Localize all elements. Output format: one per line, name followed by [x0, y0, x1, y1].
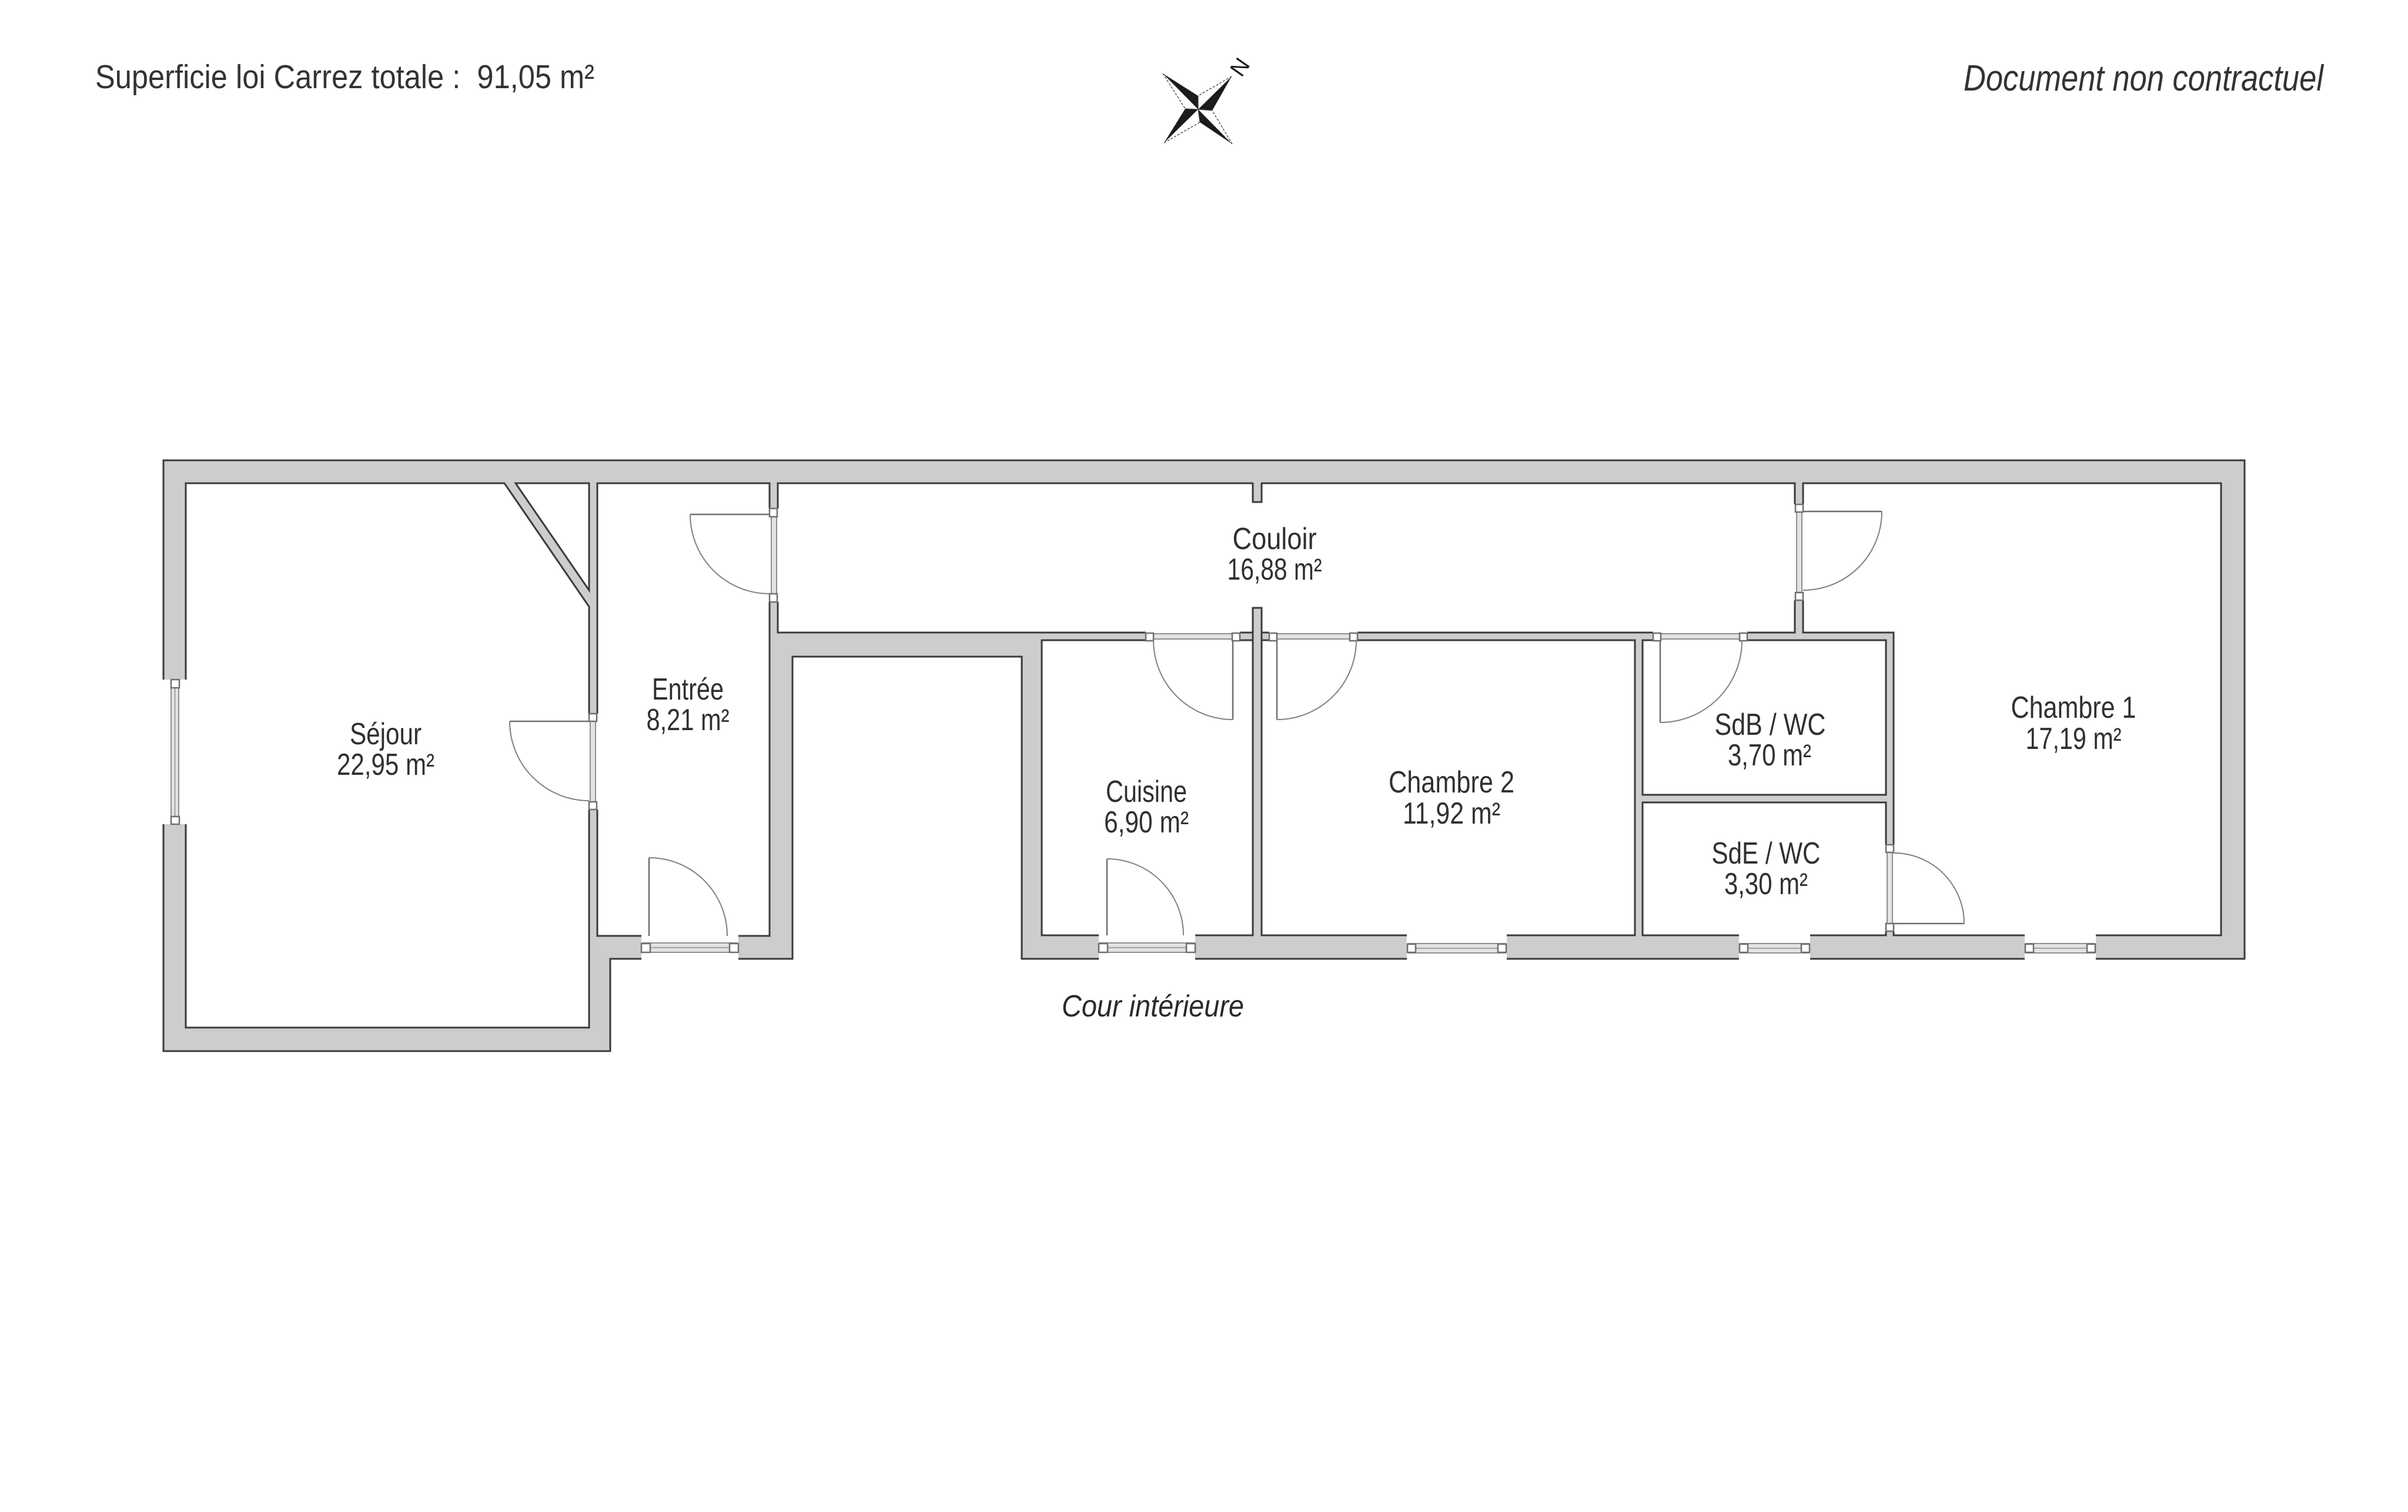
svg-text:Chambre 1: Chambre 1 — [2011, 691, 2136, 725]
svg-text:22,95 m²: 22,95 m² — [337, 748, 434, 782]
svg-text:Cour intérieure: Cour intérieure — [1062, 989, 1244, 1023]
svg-text:Couloir: Couloir — [1233, 522, 1317, 556]
svg-text:11,92 m²: 11,92 m² — [1403, 797, 1500, 831]
svg-text:Cuisine: Cuisine — [1106, 775, 1187, 809]
svg-text:3,30 m²: 3,30 m² — [1724, 867, 1808, 901]
svg-text:SdE / WC: SdE / WC — [1712, 837, 1821, 871]
svg-text:3,70 m²: 3,70 m² — [1728, 738, 1811, 772]
svg-text:Document non contractuel: Document non contractuel — [1964, 58, 2325, 99]
svg-text:16,88 m²: 16,88 m² — [1228, 553, 1322, 587]
svg-text:Entrée: Entrée — [652, 673, 724, 707]
svg-text:17,19 m²: 17,19 m² — [2026, 722, 2122, 756]
svg-text:8,21 m²: 8,21 m² — [647, 703, 730, 737]
svg-text:Chambre 2: Chambre 2 — [1389, 765, 1514, 800]
svg-text:Séjour: Séjour — [350, 717, 422, 751]
svg-text:6,90 m²: 6,90 m² — [1104, 805, 1189, 839]
svg-text:Superficie loi Carrez totale :: Superficie loi Carrez totale : 91,05 m² — [95, 58, 594, 96]
svg-text:SdB / WC: SdB / WC — [1715, 708, 1826, 742]
